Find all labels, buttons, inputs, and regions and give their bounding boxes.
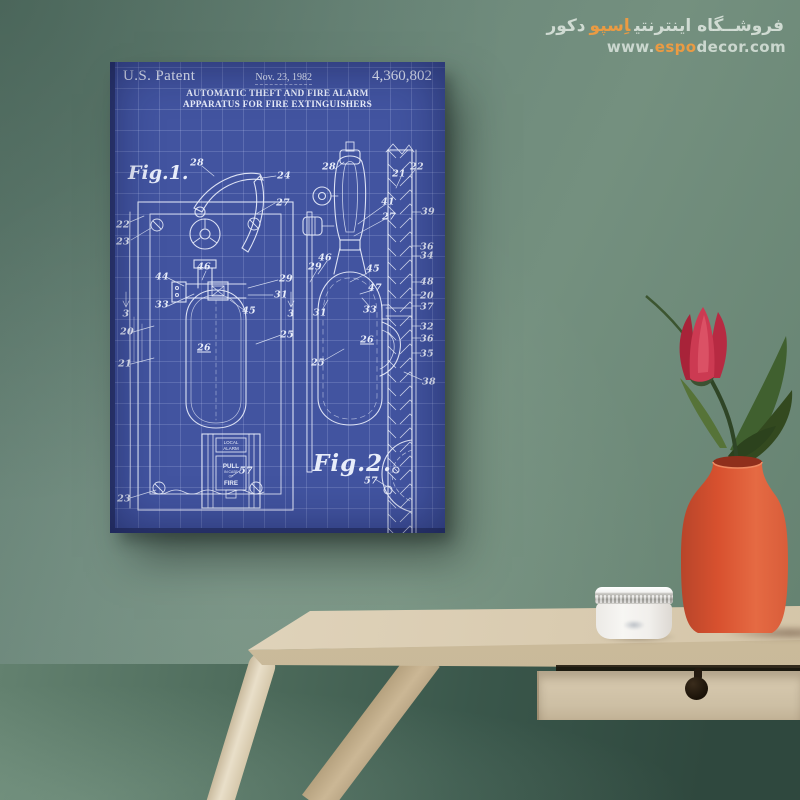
store-watermark: فروشــگاه اینترنتیاِسپودکور www.espodeco… (544, 16, 786, 56)
pull-box-text-fire: FIRE (224, 480, 238, 487)
product-photo-scene: فروشــگاه اینترنتیاِسپودکور www.espodeco… (0, 0, 800, 800)
watermark-fa-prefix: فروشــگاه اینترنتی (634, 16, 784, 36)
pull-box-text-incase: IN CASE (224, 470, 238, 474)
watermark-fa-brand: اِسپو (590, 16, 631, 36)
tulip-bud (680, 307, 727, 386)
watermark-farsi-line: فروشــگاه اینترنتیاِسپودکور (544, 16, 786, 36)
alarm-box-text-local: LOCAL (224, 440, 239, 445)
table-drawer (537, 671, 800, 720)
jar-body (596, 603, 672, 639)
watermark-url-brand: espo (655, 38, 697, 56)
jar-logo-mark (623, 620, 645, 630)
drawer-knob (685, 677, 708, 700)
fig1-caption: Fig.1. (128, 162, 188, 184)
leaf-left (680, 378, 727, 448)
watermark-fa-suffix: دکور (546, 16, 585, 36)
watermark-url-suffix: decor.com (697, 38, 787, 56)
jar-lid-ridges (596, 595, 672, 603)
patent-drawing: LOCAL ALARM PULL IN CASE OF FIRE (110, 62, 445, 533)
watermark-url: www.espodecor.com (544, 38, 786, 56)
vase-body (681, 463, 788, 633)
watermark-url-prefix: www. (607, 38, 655, 56)
alarm-box-text-alarm: ALARM (223, 446, 239, 451)
pull-box-text-pull: PULL (223, 463, 239, 470)
pull-box-text-of: OF (229, 475, 234, 479)
fig2-caption: Fig.2. (313, 450, 392, 477)
patent-blueprint-poster: U.S. Patent Nov. 23, 1982 4,360,802 AUTO… (110, 62, 445, 533)
cosmetic-jar (595, 587, 673, 639)
